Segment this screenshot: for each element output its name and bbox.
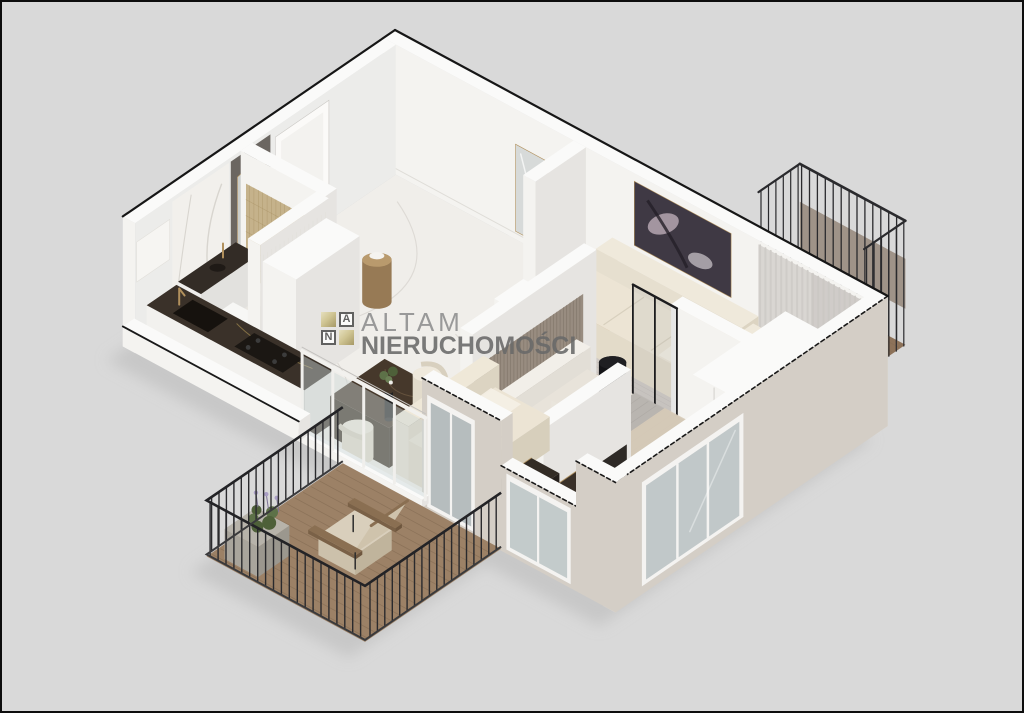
logo-letter-a-icon: A bbox=[339, 312, 354, 327]
logo-letter-n-icon: N bbox=[321, 330, 336, 345]
floorplan-screenshot: A N ALTAM NIERUCHOMOŚCI bbox=[0, 0, 1024, 713]
watermark-logo: A N ALTAM NIERUCHOMOŚCI bbox=[321, 309, 576, 359]
entrance-hall bbox=[362, 252, 391, 309]
brand-subtitle: NIERUCHOMOŚCI bbox=[361, 333, 576, 359]
logo-tiles: A N bbox=[321, 312, 354, 359]
logo-gold-tile-icon bbox=[321, 312, 336, 327]
logo-gold-tile-icon bbox=[339, 330, 354, 345]
